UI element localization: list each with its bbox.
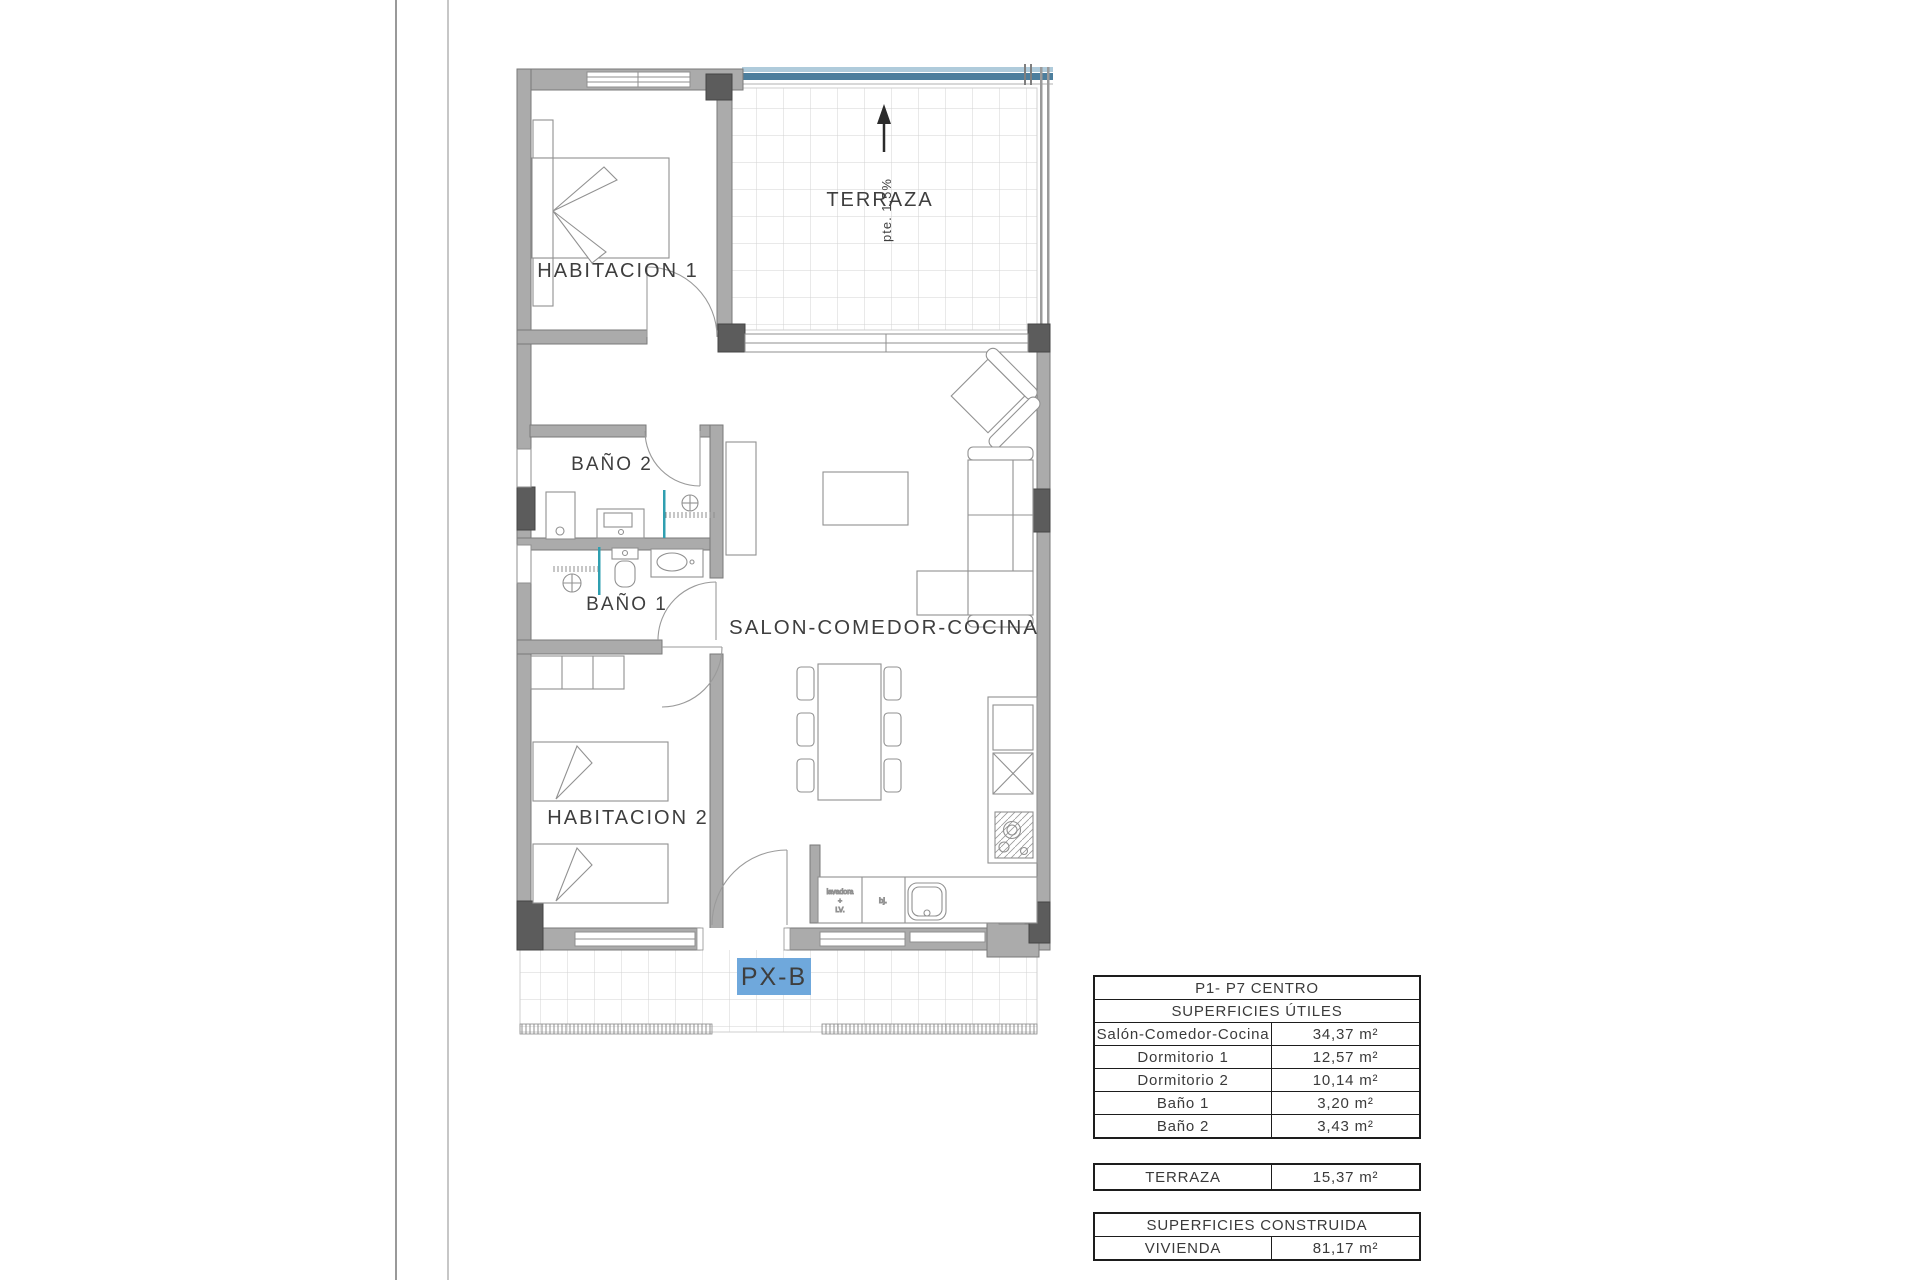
fridge <box>993 753 1033 794</box>
row-label: Baño 1 <box>1095 1092 1272 1114</box>
washer-label: LV. <box>835 907 844 914</box>
table-row: Baño 2 3,43 m² <box>1095 1114 1419 1137</box>
unit-tag-label: PX-B <box>741 963 807 991</box>
wall <box>1037 330 1050 950</box>
furniture-bano-1 <box>552 547 703 595</box>
furniture-salon <box>726 346 1047 627</box>
table-row: TERRAZA 15,37 m² <box>1095 1165 1419 1189</box>
wall <box>517 330 647 344</box>
row-label: VIVIENDA <box>1095 1237 1272 1259</box>
shower <box>663 490 717 538</box>
nightstand <box>533 120 553 158</box>
furniture-bano-2 <box>546 490 717 539</box>
shower-screen <box>663 490 666 538</box>
kitchen-cabinet <box>993 705 1033 750</box>
table-row: Dormitorio 2 10,14 m² <box>1095 1068 1419 1091</box>
row-label: Dormitorio 1 <box>1095 1046 1272 1068</box>
row-value: 12,57 m² <box>1272 1046 1419 1068</box>
furniture-dining <box>797 664 901 800</box>
wardrobe <box>531 656 624 689</box>
room-label-terraza: TERRAZA <box>826 189 933 211</box>
row-value: 3,43 m² <box>1272 1115 1419 1137</box>
window-sill <box>910 932 985 942</box>
washer-label: lavadora <box>827 889 854 896</box>
single-bed <box>533 844 668 903</box>
shower <box>552 547 601 595</box>
table-row: Salón-Comedor-Cocina 34,37 m² <box>1095 1022 1419 1045</box>
door-arc <box>645 431 700 486</box>
bj-label: bj. <box>879 896 887 905</box>
row-label: TERRAZA <box>1095 1165 1272 1189</box>
toilet <box>612 548 638 587</box>
room-label-bano-2: BAÑO 2 <box>571 453 653 475</box>
single-bed <box>533 742 668 801</box>
pillar <box>517 901 543 950</box>
coffee-table <box>823 472 908 525</box>
row-value: 10,14 m² <box>1272 1069 1419 1091</box>
row-value: 34,37 m² <box>1272 1023 1419 1045</box>
wall <box>710 425 723 578</box>
stove <box>995 812 1033 858</box>
washer-label: + <box>838 898 842 905</box>
table-subtitle: SUPERFICIES ÚTILES <box>1095 999 1419 1022</box>
water-heater <box>546 492 575 539</box>
row-value: 15,37 m² <box>1272 1165 1419 1189</box>
floor-plan-drawing: lavadora + LV. bj. pte. 1,5% HABITACION … <box>0 0 1920 1280</box>
wall <box>530 425 646 437</box>
row-label: Dormitorio 2 <box>1095 1069 1272 1091</box>
floor-plan-page: lavadora + LV. bj. pte. 1,5% HABITACION … <box>0 0 1920 1280</box>
armchair <box>942 346 1047 451</box>
dining-table <box>818 664 881 800</box>
shower-screen <box>598 547 601 595</box>
pillar <box>1028 324 1050 352</box>
pillar <box>706 74 732 100</box>
row-label: Salón-Comedor-Cocina <box>1095 1023 1272 1045</box>
porch-edge-hatch <box>520 1024 712 1034</box>
window <box>517 449 531 487</box>
unit-tag: PX-B <box>737 958 811 995</box>
pillar <box>517 487 535 530</box>
sideboard <box>726 442 756 555</box>
window <box>517 545 531 583</box>
furniture-habitacion-2 <box>531 656 668 903</box>
wall <box>717 90 732 330</box>
wall <box>517 640 662 654</box>
table-superficies-utiles: P1- P7 CENTRO SUPERFICIES ÚTILES Salón-C… <box>1093 975 1421 1139</box>
kitchen-sink <box>908 883 946 920</box>
row-value: 3,20 m² <box>1272 1092 1419 1114</box>
row-value: 81,17 m² <box>1272 1237 1419 1259</box>
pillar <box>718 324 745 352</box>
table-row: Dormitorio 1 12,57 m² <box>1095 1045 1419 1068</box>
porch-edge-hatch <box>822 1024 1037 1034</box>
room-label-habitacion-2: HABITACION 2 <box>547 807 708 829</box>
room-label-bano-1: BAÑO 1 <box>586 593 668 615</box>
table-title: SUPERFICIES CONSTRUIDA <box>1095 1214 1419 1236</box>
room-label-habitacion-1: HABITACION 1 <box>537 260 698 282</box>
table-title: P1- P7 CENTRO <box>1095 977 1419 999</box>
sofa <box>917 447 1033 627</box>
washbasin <box>651 549 703 577</box>
pillar <box>1033 489 1050 532</box>
room-label-salon: SALON-COMEDOR-COCINA <box>729 616 1039 639</box>
table-row: Baño 1 3,20 m² <box>1095 1091 1419 1114</box>
table-row: VIVIENDA 81,17 m² <box>1095 1236 1419 1259</box>
table-superficies-construida: SUPERFICIES CONSTRUIDA VIVIENDA 81,17 m² <box>1093 1212 1421 1261</box>
entrance-opening <box>697 928 790 950</box>
table-terraza: TERRAZA 15,37 m² <box>1093 1163 1421 1191</box>
row-label: Baño 2 <box>1095 1115 1272 1137</box>
